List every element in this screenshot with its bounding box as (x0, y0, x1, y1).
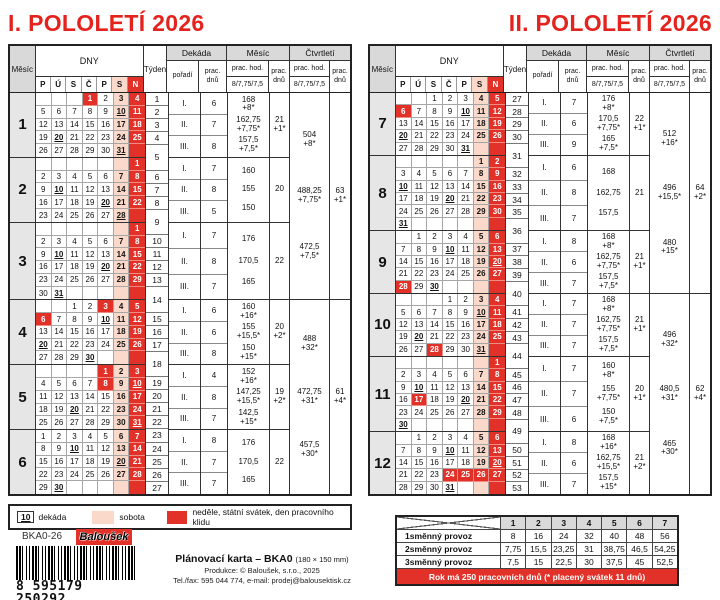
shift-hours-value: 52,5 (653, 556, 677, 568)
day-cell: 5 (443, 369, 459, 381)
header-prac-dnu: prac.dnů (559, 61, 586, 92)
day-cell: 10 (114, 106, 130, 119)
value: 480+15* (661, 239, 678, 257)
week-number: 19 (146, 377, 168, 390)
day-cell: 21 (129, 456, 145, 469)
week-number: 25 (146, 456, 168, 469)
value: 20+2* (273, 323, 285, 341)
day-cell (489, 482, 505, 494)
day-cell: 8 (427, 105, 443, 117)
day-cell (83, 365, 99, 378)
day-cell: 1 (98, 365, 114, 378)
month-workdays: 22 (270, 223, 289, 301)
half-first: I. POLOLETÍ 2026 MěsícDNYPÚSČPSNTýdenDek… (8, 8, 352, 496)
day-cell: 3 (474, 294, 490, 306)
value: 20 (275, 185, 284, 194)
week-number: 7 (146, 184, 168, 197)
value: 160+8* (602, 362, 615, 380)
header-group-title: Měsíc (227, 46, 289, 61)
day-cell: 10 (396, 181, 412, 193)
day-cell (474, 143, 490, 155)
day-cell: 3 (412, 369, 428, 381)
value: 168+8* (602, 233, 615, 251)
shift-hours-value: 7,5 (501, 556, 526, 568)
week-number: 37 (506, 244, 528, 257)
day-cell: 27 (98, 209, 114, 222)
day-cell: 18 (474, 118, 490, 130)
value: 472,75+31* (297, 388, 321, 406)
dekada-ordinal: II. (169, 322, 200, 344)
day-cell (396, 156, 412, 168)
dekada-workdays: 8 (201, 387, 227, 409)
value: 168+8* (602, 296, 615, 314)
day-cell: 23 (98, 131, 114, 144)
month-days: 1234567891011121314151617181920212223242… (396, 93, 505, 156)
day-cell: 5 (36, 106, 52, 119)
day-cell: 24 (52, 274, 68, 287)
day-cell: 6 (489, 432, 505, 444)
shift-hours-value: 31 (577, 543, 602, 555)
day-cell: 7 (114, 171, 130, 184)
value: 488+32* (301, 335, 318, 353)
quarter-workdays: 63+1* (330, 93, 350, 300)
header-day-letters: PÚSČPSN (396, 76, 503, 92)
day-cell: 15 (412, 457, 428, 469)
value: 157,5+7,5* (238, 136, 258, 154)
day-cell (443, 156, 459, 168)
day-cell: 18 (114, 326, 130, 339)
day-cell: 29 (83, 144, 99, 157)
dekada-ordinal: I. (529, 231, 560, 252)
day-cell: 6 (114, 430, 130, 443)
day-cell: 4 (412, 168, 428, 180)
day-cell (98, 351, 114, 364)
day-cell (427, 218, 443, 230)
day-cell: 15 (489, 382, 505, 394)
day-cell: 10 (458, 105, 474, 117)
month-number: 7 (370, 93, 395, 156)
column-quarter-days: 63+1*61+4* (330, 93, 350, 494)
day-cell: 18 (67, 196, 83, 209)
day-cell (489, 218, 505, 230)
day-cell: 18 (427, 394, 443, 406)
producer-line: Produkce: © Baloušek, s.r.o., 2025 (148, 566, 376, 576)
day-cell: 12 (474, 244, 490, 256)
day-cell: 29 (489, 406, 505, 418)
day-cell: 9 (458, 306, 474, 318)
day-cell (129, 144, 145, 157)
day-cell: 23 (489, 193, 505, 205)
day-cell: 12 (36, 119, 52, 132)
month-workdays: 21+1* (270, 93, 289, 158)
day-cell: 27 (36, 351, 52, 364)
week-number: 33 (506, 181, 528, 194)
dekada-ordinal: II. (169, 452, 200, 474)
month-dekady: I.II.III. (169, 158, 200, 223)
value: 21+1* (273, 116, 285, 134)
month-dekady: I.II.III. (169, 365, 200, 430)
day-cell: 23 (443, 130, 459, 142)
day-cell: 2 (489, 156, 505, 168)
dekada-ordinal: I. (169, 430, 200, 452)
day-letter: P (457, 77, 472, 92)
day-cell: 1 (474, 156, 490, 168)
dekada-ordinal: II. (169, 249, 200, 275)
day-cell: 7 (427, 306, 443, 318)
day-cell: 12 (474, 445, 490, 457)
value: 162,75+7,75* (236, 116, 260, 134)
dekada-workdays: 8 (201, 344, 227, 365)
value: 142,5+15* (238, 409, 258, 427)
day-cell: 24 (98, 339, 114, 352)
day-cell: 17 (443, 256, 459, 268)
day-cell: 26 (443, 406, 459, 418)
day-cell (114, 287, 130, 300)
day-cell: 15 (67, 326, 83, 339)
day-cell: 26 (83, 209, 99, 222)
day-cell: 28 (412, 143, 428, 155)
day-cell: 4 (67, 171, 83, 184)
week-number: 41 (506, 306, 528, 319)
day-cell: 28 (129, 468, 145, 481)
month-hours: 168+8*162,75+7,75*157,5+7,5* (228, 93, 269, 158)
week-number: 10 (146, 235, 168, 248)
day-cell: 30 (427, 281, 443, 293)
value: 62+4* (694, 385, 706, 403)
legend-saturday-label: sobota (119, 512, 145, 522)
day-cell: 1 (83, 93, 99, 106)
day-cell: 22 (412, 268, 428, 280)
day-cell: 16 (489, 181, 505, 193)
day-cell (427, 419, 443, 431)
day-cell: 31 (396, 218, 412, 230)
value: 176 (242, 235, 255, 244)
day-cell: 25 (67, 274, 83, 287)
month-dekady-dnu: 787 (201, 223, 227, 301)
day-cell: 10 (443, 244, 459, 256)
day-cell: 8 (67, 313, 83, 326)
day-cell: 8 (443, 306, 459, 318)
day-cell: 5 (83, 236, 99, 249)
value: 150+15* (240, 344, 257, 362)
week-number: 24 (146, 443, 168, 456)
value: 165 (242, 476, 255, 485)
week-number: 34 (506, 194, 528, 207)
day-cell: 16 (427, 457, 443, 469)
day-cell: 12 (443, 382, 459, 394)
day-cell: 2 (396, 369, 412, 381)
day-cell: 3 (443, 231, 459, 243)
day-cell: 26 (396, 344, 412, 356)
day-cell: 22 (36, 468, 52, 481)
day-cell: 31 (52, 287, 68, 300)
day-cell: 25 (427, 406, 443, 418)
month-number: 5 (10, 365, 35, 430)
week-number: 36 (506, 219, 528, 243)
day-cell: 3 (458, 93, 474, 105)
month-number: 8 (370, 156, 395, 231)
dekada-sample-number: 10 (17, 511, 34, 523)
day-cell: 27 (396, 143, 412, 155)
day-cell: 19 (427, 193, 443, 205)
day-cell (458, 218, 474, 230)
day-cell: 9 (36, 248, 52, 261)
dekada-workdays: 7 (561, 382, 587, 407)
week-number: 18 (146, 352, 168, 377)
day-cell (114, 481, 130, 494)
shift-row-label: 2směnný provoz (397, 543, 501, 555)
contact-line: Tel./fax: 595 044 774, e-mail: prodej@ba… (148, 576, 376, 586)
day-letter: N (128, 77, 143, 92)
day-cell: 21 (474, 394, 490, 406)
day-cell (396, 357, 412, 369)
day-cell: 19 (36, 131, 52, 144)
week-number: 15 (146, 313, 168, 326)
day-cell: 13 (396, 118, 412, 130)
day-cell: 9 (114, 378, 130, 391)
day-cell: 13 (412, 319, 428, 331)
day-cell: 24 (458, 130, 474, 142)
month-dekady-dnu: 487 (201, 365, 227, 430)
day-cell: 29 (412, 281, 428, 293)
day-cell: 6 (36, 313, 52, 326)
day-cell: 15 (129, 183, 145, 196)
value: 504+8* (303, 131, 316, 149)
value: 64+2* (694, 184, 706, 202)
day-cell: 25 (67, 209, 83, 222)
value: 160 (242, 167, 255, 176)
day-cell: 28 (83, 416, 99, 429)
day-letter: Č (82, 77, 97, 92)
month-number: 6 (10, 430, 35, 494)
dekada-workdays: 7 (561, 474, 587, 494)
week-number: 42 (506, 319, 528, 332)
day-cell: 9 (83, 313, 99, 326)
month-workdays: 21+1* (630, 231, 649, 294)
shift-hours-table: 12345671směnný provoz81624324048562směnn… (395, 515, 679, 586)
shift-hours-value: 46,5 (627, 543, 652, 555)
week-number: 6 (146, 171, 168, 184)
day-cell (36, 158, 52, 171)
day-cell: 11 (427, 382, 443, 394)
day-cell: 24 (114, 131, 130, 144)
day-cell (489, 419, 505, 431)
month-dekady-dnu: 785 (201, 158, 227, 223)
day-cell: 26 (474, 469, 490, 481)
value: 457,5+30* (299, 441, 319, 459)
day-cell: 2 (114, 365, 130, 378)
day-cell: 31 (114, 144, 130, 157)
month-dekady-dnu: 867 (561, 231, 587, 294)
day-cell: 3 (443, 432, 459, 444)
day-cell: 26 (427, 205, 443, 217)
day-cell: 2 (427, 231, 443, 243)
day-cell: 7 (412, 105, 428, 117)
day-cell: 1 (489, 357, 505, 369)
month-number: 2 (10, 158, 35, 223)
day-cell (36, 365, 52, 378)
value: 496+32* (661, 331, 678, 349)
week-number: 49 (506, 420, 528, 444)
week-number: 40 (506, 282, 528, 306)
column-mesic: 789101112 (370, 93, 396, 494)
dekada-workdays: 7 (201, 158, 227, 180)
imprint: Plánovací karta – BKA0 (180 × 150 mm) Pr… (148, 553, 376, 586)
month-days: 1234567891011121314151617181920212223242… (36, 158, 145, 223)
value: 170,5+7,75* (597, 115, 620, 133)
shift-hours-value: 15 (526, 556, 551, 568)
day-cell (67, 365, 83, 378)
dekada-ordinal: I. (529, 357, 560, 382)
day-cell: 13 (458, 382, 474, 394)
shift-count-header: 7 (653, 517, 677, 529)
day-cell: 30 (83, 351, 99, 364)
day-cell: 7 (396, 244, 412, 256)
dekada-ordinal: I. (169, 93, 200, 115)
dekada-workdays: 7 (201, 473, 227, 494)
day-cell: 4 (489, 294, 505, 306)
header-prac-hod: prac. hod.8/7,75/7,5 (227, 61, 269, 92)
month-hours: 168+16*162,75+15,5*157,5+15* (588, 432, 629, 494)
month-workdays: 22 (270, 430, 289, 494)
day-cell: 29 (129, 274, 145, 287)
day-cell: 24 (443, 268, 459, 280)
barcode-digits: 8 595179 250292 (16, 580, 136, 600)
day-cell: 13 (443, 181, 459, 193)
day-cell: 5 (83, 171, 99, 184)
day-cell: 25 (474, 130, 490, 142)
value: 480,5+31* (659, 385, 679, 403)
value: 61+4* (334, 388, 346, 406)
value: 21+1* (633, 253, 645, 271)
day-cell (67, 287, 83, 300)
value: 176+8* (602, 95, 615, 113)
day-cell: 23 (458, 331, 474, 343)
day-cell: 7 (458, 168, 474, 180)
month-number: 3 (10, 223, 35, 301)
day-cell: 18 (489, 319, 505, 331)
day-cell: 13 (67, 391, 83, 404)
day-cell: 5 (474, 432, 490, 444)
day-cell: 14 (427, 319, 443, 331)
day-cell: 8 (489, 369, 505, 381)
day-cell (129, 209, 145, 222)
day-cell: 10 (129, 378, 145, 391)
day-cell: 3 (98, 300, 114, 313)
day-letter: Ú (411, 77, 426, 92)
shift-hours-value: 7,75 (501, 543, 526, 555)
day-cell: 31 (129, 416, 145, 429)
month-workdays: 22+1* (630, 93, 649, 156)
week-number: 20 (146, 390, 168, 403)
dekada-workdays: 7 (561, 315, 587, 336)
day-cell: 1 (67, 300, 83, 313)
month-hours: 160+16*155+15,5*150+15* (228, 300, 269, 365)
half-second: II. POLOLETÍ 2026 MěsícDNYPÚSČPSNTýdenDe… (368, 8, 712, 496)
week-number: 14 (146, 287, 168, 312)
day-cell: 11 (83, 443, 99, 456)
day-cell (83, 287, 99, 300)
day-cell: 20 (52, 131, 68, 144)
day-cell: 27 (412, 344, 428, 356)
day-cell: 26 (36, 144, 52, 157)
month-hours: 168162,75157,5 (588, 156, 629, 231)
day-cell (67, 93, 83, 106)
day-cell: 17 (67, 456, 83, 469)
column-month-hours: 168+8*162,75+7,75*157,5+7,5*160155150176… (228, 93, 270, 494)
week-number: 43 (506, 332, 528, 345)
dekada-workdays: 6 (201, 300, 227, 322)
day-cell: 27 (67, 416, 83, 429)
day-cell (489, 143, 505, 155)
day-cell: 15 (412, 256, 428, 268)
shift-count-header: 3 (552, 517, 577, 529)
shift-hours-value: 48 (627, 530, 652, 542)
day-cell (52, 93, 68, 106)
value: 168+8* (242, 96, 255, 114)
column-tyden: 2728293031323334353637383940414243444546… (506, 93, 529, 494)
day-cell: 18 (458, 457, 474, 469)
day-cell: 14 (52, 326, 68, 339)
day-cell (36, 93, 52, 106)
column-tyden: 1234567891011121314151617181920212223242… (146, 93, 169, 494)
dekada-workdays: 6 (201, 93, 227, 115)
day-cell: 14 (67, 119, 83, 132)
column-quarter-days: 64+2*62+4* (690, 93, 710, 494)
day-cell: 31 (474, 344, 490, 356)
day-cell: 20 (489, 256, 505, 268)
dekada-workdays: 7 (201, 409, 227, 430)
header-mesic: Měsíc (10, 46, 36, 92)
week-number: 8 (146, 197, 168, 210)
dekada-workdays: 6 (561, 453, 587, 474)
week-number: 5 (146, 145, 168, 170)
day-cell: 19 (489, 118, 505, 130)
month-number: 10 (370, 294, 395, 357)
dekada-workdays: 7 (561, 273, 587, 293)
day-cell (427, 357, 443, 369)
month-dekady: I.II.III. (529, 432, 560, 494)
day-cell: 11 (458, 244, 474, 256)
holiday-color-swatch (167, 511, 188, 524)
dekada-ordinal: I. (169, 365, 200, 387)
day-cell: 12 (396, 319, 412, 331)
dekada-ordinal: III. (529, 336, 560, 356)
week-number: 38 (506, 256, 528, 269)
day-cell (474, 482, 490, 494)
day-cell (36, 223, 52, 236)
day-cell: 8 (412, 445, 428, 457)
day-cell: 16 (114, 391, 130, 404)
day-cell (412, 294, 428, 306)
header-tyden: Týden (504, 46, 527, 92)
day-cell (412, 156, 428, 168)
value: 157,5+15* (598, 474, 618, 492)
day-cell (458, 357, 474, 369)
day-cell (412, 419, 428, 431)
day-cell: 4 (83, 430, 99, 443)
week-number: 11 (146, 248, 168, 261)
header-group-dekada: Dekádapořadíprac.dnů (167, 46, 227, 92)
day-cell (83, 223, 99, 236)
month-number: 4 (10, 300, 35, 365)
day-cell: 6 (67, 378, 83, 391)
day-cell (443, 218, 459, 230)
value: 150 (242, 204, 255, 213)
dekada-workdays: 7 (561, 206, 587, 230)
day-cell: 23 (427, 268, 443, 280)
day-cell (396, 294, 412, 306)
